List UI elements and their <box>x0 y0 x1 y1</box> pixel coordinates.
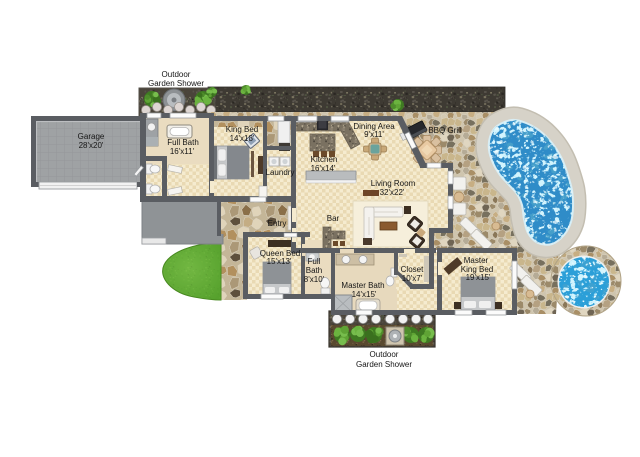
svg-text:Living Room: Living Room <box>371 179 416 188</box>
svg-text:Garden Shower: Garden Shower <box>356 360 412 369</box>
svg-text:Closet: Closet <box>401 265 424 274</box>
svg-text:10'x7': 10'x7' <box>402 274 423 283</box>
svg-text:Bath: Bath <box>306 266 322 275</box>
svg-text:16'x11': 16'x11' <box>170 147 195 156</box>
svg-text:Outdoor: Outdoor <box>162 70 191 79</box>
svg-text:Entry: Entry <box>268 219 287 228</box>
svg-text:Outdoor: Outdoor <box>370 350 399 359</box>
svg-text:32'x22': 32'x22' <box>380 188 405 197</box>
svg-text:Garden Shower: Garden Shower <box>148 79 204 88</box>
svg-text:Full: Full <box>308 257 321 266</box>
svg-text:14'x18': 14'x18' <box>230 134 255 143</box>
svg-text:15'x13': 15'x13' <box>267 257 292 266</box>
svg-text:8'x10': 8'x10' <box>304 275 325 284</box>
svg-text:Laundry: Laundry <box>266 168 295 177</box>
svg-text:9'x11': 9'x11' <box>364 130 384 139</box>
svg-text:Master Bath: Master Bath <box>341 281 384 290</box>
svg-text:Garage: Garage <box>78 132 105 141</box>
svg-text:Master: Master <box>464 256 489 265</box>
svg-text:28'x20': 28'x20' <box>79 141 104 150</box>
svg-text:16'x14': 16'x14' <box>311 164 336 173</box>
svg-text:Full Bath: Full Bath <box>167 138 199 147</box>
svg-text:Bar: Bar <box>327 214 340 223</box>
svg-text:14'x15': 14'x15' <box>352 290 377 299</box>
svg-text:Kitchen: Kitchen <box>311 155 338 164</box>
svg-text:19'x15': 19'x15' <box>466 273 491 282</box>
svg-text:BBQ Grill: BBQ Grill <box>428 126 462 135</box>
svg-text:King Bed: King Bed <box>226 125 258 134</box>
